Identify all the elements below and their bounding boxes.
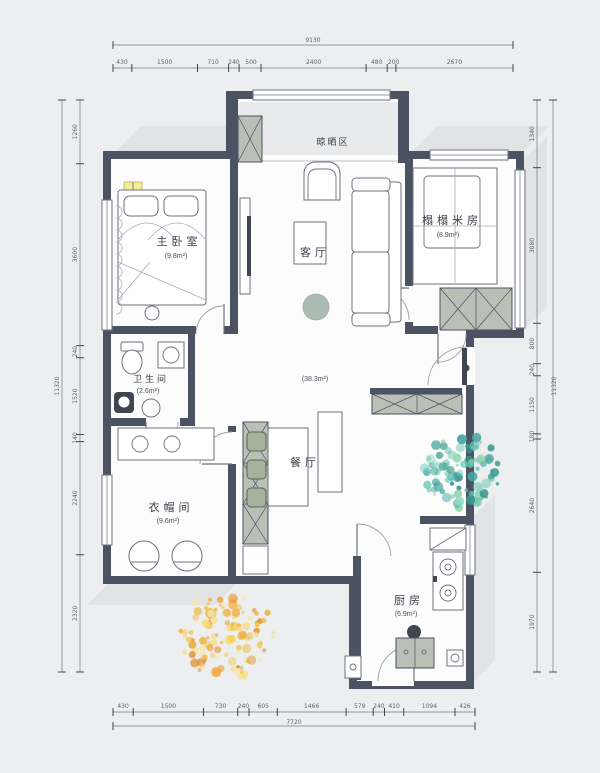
armchair — [304, 162, 340, 200]
living-room-label: 客厅 — [300, 245, 330, 259]
dimension-bottom: 430 1500 730 240 605 1466 579 240 410 10… — [113, 703, 475, 730]
cloak-window — [102, 475, 112, 545]
hall-cabinet — [372, 394, 462, 414]
tatami-label: 榻榻米房 — [422, 213, 482, 227]
floor-drain — [345, 656, 361, 678]
stool — [145, 306, 159, 320]
dim: 2670 — [447, 59, 462, 66]
dim: 1150 — [529, 397, 536, 412]
sofa — [352, 178, 401, 326]
dim-top-total: 9130 — [305, 37, 320, 44]
drying-area-label: 晾晒区 — [316, 136, 349, 147]
dim: 2240 — [72, 490, 79, 505]
dim: 1466 — [304, 703, 319, 710]
dishwasher — [447, 650, 463, 666]
pillow — [164, 196, 198, 216]
bath-sink — [114, 392, 134, 413]
pillow — [124, 196, 158, 216]
washing-machine — [158, 342, 184, 368]
tatami-top-window — [430, 150, 508, 160]
balcony-cabinet — [238, 116, 262, 162]
round-rug — [303, 294, 329, 320]
floor-plan-drawing: 主卧室 (9.8m²) 榻榻米房 (8.9m²) 客厅 (38.3m²) 卫生间… — [0, 0, 600, 773]
dim-left-total: 11320 — [54, 376, 61, 395]
dim: 430 — [117, 703, 129, 710]
dim: 605 — [257, 703, 269, 710]
kitchen-area: (6.9m²) — [395, 611, 418, 618]
shoe-cabinet — [243, 546, 268, 574]
bathroom-area: (2.6m²) — [137, 388, 160, 395]
dim: 2400 — [306, 59, 321, 66]
tub-chair — [129, 541, 159, 571]
dim: 800 — [529, 338, 536, 350]
kitchen-label: 厨房 — [394, 594, 424, 607]
corner-shelf — [430, 528, 466, 550]
dim: 500 — [245, 59, 257, 66]
dim: 3600 — [72, 247, 79, 262]
tv-icon — [247, 216, 251, 276]
tree-bottom — [178, 594, 275, 681]
dim: 480 — [371, 59, 383, 66]
dim: 2640 — [529, 498, 536, 513]
dim: 3080 — [529, 238, 536, 253]
master-bedroom-area: (9.8m²) — [165, 253, 188, 260]
dim: 2320 — [72, 605, 79, 620]
master-bedroom-label: 主卧室 — [157, 234, 202, 248]
toilet — [121, 342, 143, 374]
stove — [433, 552, 463, 610]
total-area-label: (38.3m²) — [302, 376, 328, 383]
basin — [142, 399, 160, 417]
dim: 240 — [72, 346, 79, 358]
dim-bottom-total: 7720 — [286, 719, 301, 726]
cloakroom-area: (9.6m²) — [157, 518, 180, 525]
dimension-top: 9130 430 1500 710 240 500 2400 480 200 2… — [113, 37, 513, 72]
dim-right-total: 11320 — [551, 376, 558, 395]
dim: 410 — [388, 703, 400, 710]
master-bedroom-furniture — [116, 182, 206, 320]
dim: 1500 — [157, 59, 172, 66]
balcony-window — [253, 90, 390, 100]
floor-plan-canvas: 主卧室 (9.8m²) 榻榻米房 (8.9m²) 客厅 (38.3m²) 卫生间… — [0, 0, 600, 773]
master-window — [102, 200, 112, 330]
dim: 730 — [215, 703, 227, 710]
dining-chair — [247, 460, 266, 479]
island-table — [318, 412, 342, 492]
dim: 1520 — [72, 388, 79, 403]
dim: 140 — [72, 432, 79, 444]
cloakroom-label: 衣帽间 — [149, 500, 194, 514]
dim: 240 — [228, 59, 240, 66]
dining-chair — [247, 488, 266, 507]
tatami-wardrobe — [440, 288, 512, 330]
dimension-left: 1260 3600 240 1520 140 2240 2320 11320 — [54, 100, 84, 672]
dim: 200 — [388, 59, 400, 66]
dim: 100 — [529, 430, 536, 442]
bathroom-label: 卫生间 — [133, 373, 169, 384]
dim: 1970 — [529, 614, 536, 629]
tatami-area: (8.9m²) — [437, 232, 460, 239]
dim: 430 — [116, 59, 128, 66]
dining-label: 餐厅 — [290, 455, 320, 469]
dim: 240 — [529, 364, 536, 376]
dining-chair — [247, 432, 266, 451]
tub-chair — [172, 541, 202, 571]
dim: 710 — [207, 59, 219, 66]
dim: 1260 — [72, 124, 79, 139]
dim: 579 — [354, 703, 366, 710]
dim: 1340 — [529, 126, 536, 141]
dim: 240 — [238, 703, 250, 710]
dim: 426 — [459, 703, 471, 710]
entry-door-pivot — [463, 365, 470, 372]
dim: 1094 — [422, 703, 437, 710]
dim: 1500 — [161, 703, 176, 710]
dim: 240 — [373, 703, 385, 710]
tatami-right-window — [515, 170, 525, 328]
